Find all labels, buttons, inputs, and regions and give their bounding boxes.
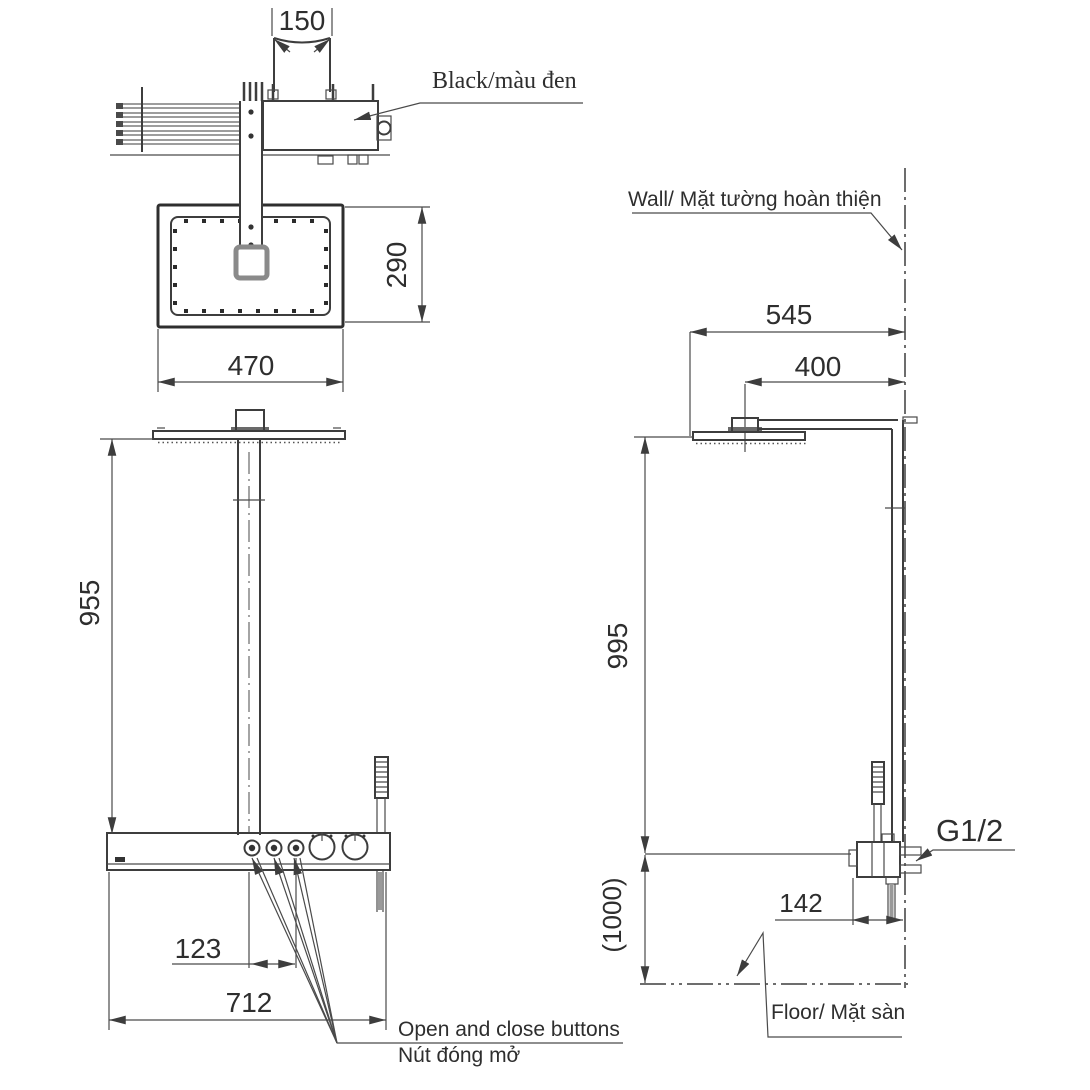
inlet-cylinder	[268, 38, 336, 99]
technical-drawing: 150 Black/màu đen 290 470 955 123 712 Op…	[0, 0, 1090, 1090]
side-valve-box	[849, 834, 921, 918]
open-close-label-vi: Nút đóng mở	[398, 1044, 521, 1067]
front-head-plate	[153, 410, 345, 443]
thread-size-label: G1/2	[936, 813, 1003, 848]
dim-290-label: 290	[381, 242, 412, 289]
black-label-leader	[354, 103, 583, 120]
side-view	[632, 168, 1015, 1037]
box-pins	[244, 82, 373, 101]
head-connector-square	[236, 247, 267, 278]
open-close-label-en: Open and close buttons	[398, 1018, 620, 1041]
thread-leader	[916, 850, 1015, 861]
brand-mark	[115, 857, 125, 862]
button-leaders	[252, 858, 623, 1043]
open-close-buttons	[245, 841, 304, 856]
side-hand-shower	[872, 762, 884, 842]
dim-123-label: 123	[175, 933, 222, 964]
front-control-panel	[107, 832, 390, 870]
dim-545-label: 545	[766, 299, 813, 330]
plan-control-box	[244, 82, 391, 164]
dim-400-label: 400	[795, 351, 842, 382]
dim-995	[634, 437, 851, 854]
drawing-linework: 150 Black/màu đen 290 470 955 123 712 Op…	[0, 0, 1090, 1090]
control-knobs	[310, 832, 368, 860]
wall-label-leader	[632, 213, 902, 250]
dim-150-label: 150	[279, 5, 326, 36]
dim-955-label: 955	[74, 580, 105, 627]
plan-view	[110, 8, 583, 327]
mounting-bracket-strip	[240, 101, 262, 251]
black-color-label: Black/màu đen	[432, 68, 577, 94]
annotations: 150 Black/màu đen 290 470 955 123 712 Op…	[74, 5, 1003, 1067]
dim-1000-label: (1000)	[597, 877, 627, 952]
floor-label: Floor/ Mặt sàn	[771, 1001, 905, 1024]
dim-955	[100, 439, 153, 834]
dim-400	[745, 382, 905, 452]
dim-470-label: 470	[228, 350, 275, 381]
wall-label: Wall/ Mặt tường hoàn thiện	[628, 188, 882, 211]
dim-712-label: 712	[226, 987, 273, 1018]
dim-995-label: 995	[602, 623, 633, 670]
dim-142-label: 142	[779, 888, 822, 918]
supply-pipes	[116, 87, 240, 152]
